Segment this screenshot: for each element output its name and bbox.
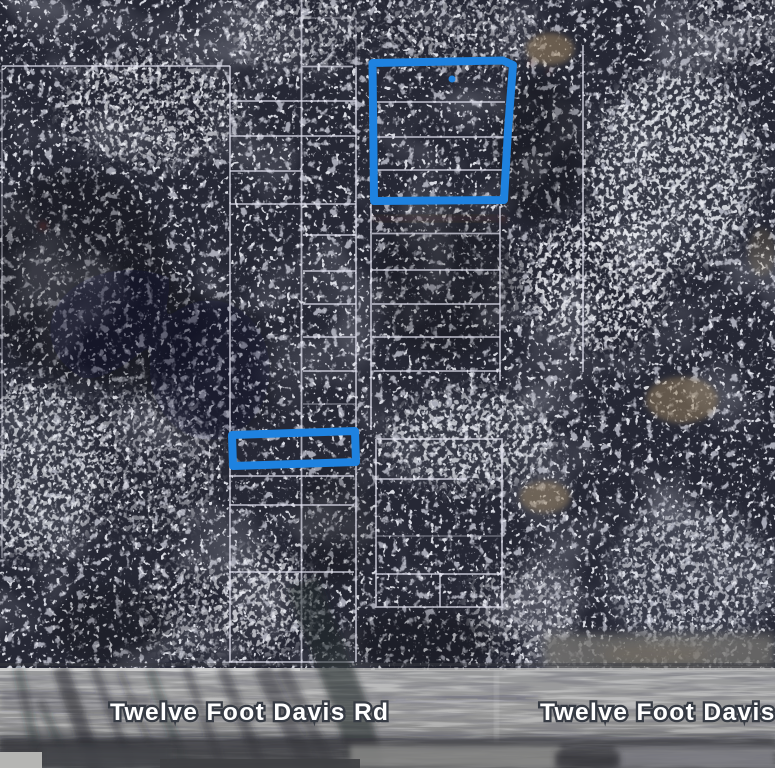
svg-text:Twelve Foot Davis Rd: Twelve Foot Davis Rd — [110, 699, 389, 726]
svg-text:Twelve Foot Davis Rd: Twelve Foot Davis Rd — [540, 699, 775, 726]
